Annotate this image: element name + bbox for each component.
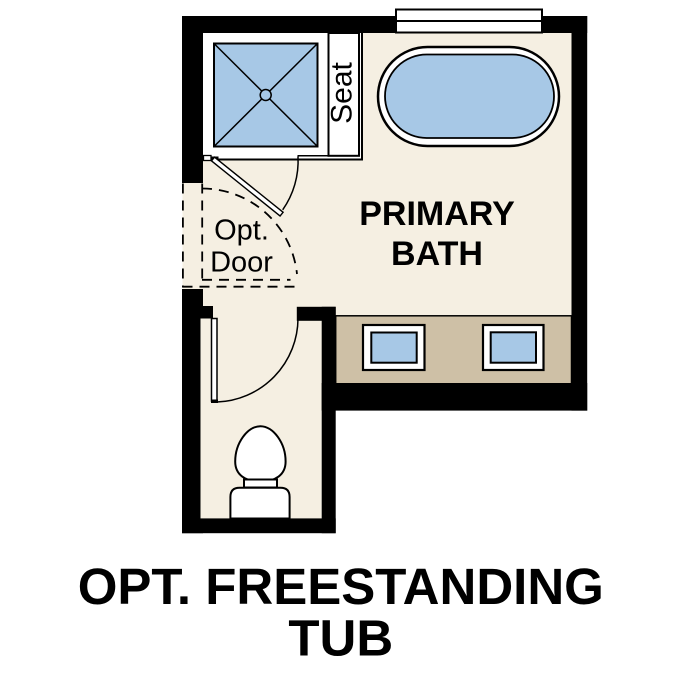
- svg-text:OPT. FREESTANDING: OPT. FREESTANDING: [78, 558, 604, 615]
- svg-text:Opt.: Opt.: [214, 215, 269, 247]
- svg-text:Door: Door: [210, 247, 273, 279]
- svg-text:TUB: TUB: [288, 610, 393, 667]
- svg-text:PRIMARY: PRIMARY: [359, 195, 515, 233]
- svg-text:BATH: BATH: [391, 235, 483, 273]
- svg-text:Seat: Seat: [326, 61, 359, 123]
